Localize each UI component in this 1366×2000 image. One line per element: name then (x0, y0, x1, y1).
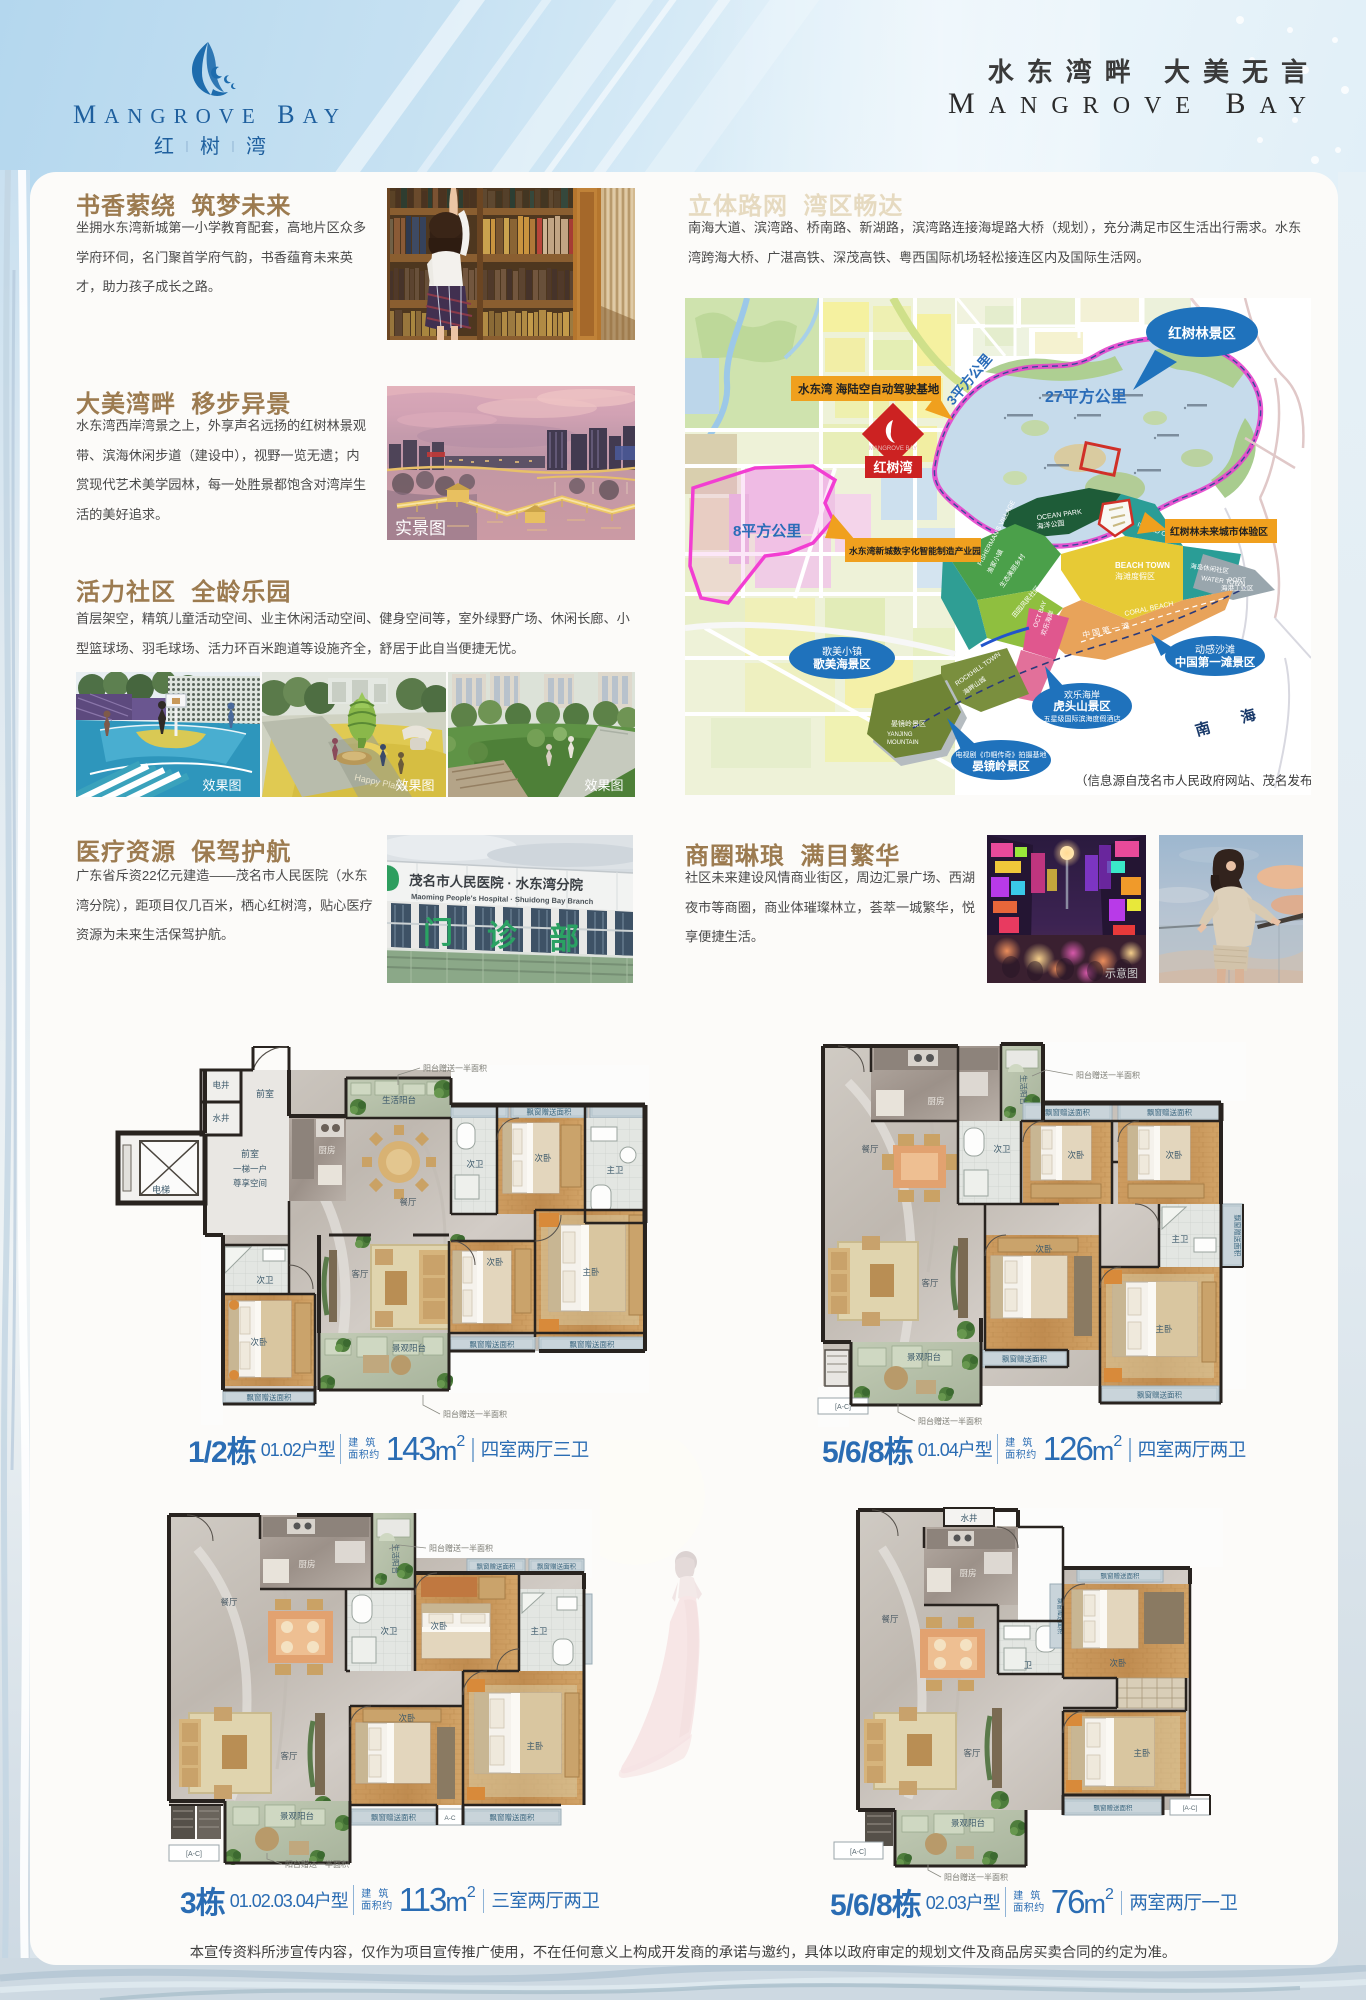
svg-text:电梯: 电梯 (152, 1184, 170, 1195)
svg-text:生活阳台: 生活阳台 (382, 1095, 416, 1105)
svg-text:阳台赠送一半面积: 阳台赠送一半面积 (285, 1859, 349, 1869)
svg-text:诊: 诊 (487, 920, 518, 953)
svg-text:五星级国际滨海度假酒店: 五星级国际滨海度假酒店 (1044, 714, 1121, 723)
svg-text:电视剧《巾帼传奇》拍摄基地: 电视剧《巾帼传奇》拍摄基地 (956, 750, 1047, 759)
svg-text:一梯一户: 一梯一户 (233, 1164, 267, 1174)
svg-text:示意图: 示意图 (1105, 966, 1138, 980)
svg-text:YANJING: YANJING (887, 732, 913, 738)
svg-text:厨房: 厨房 (298, 1559, 315, 1569)
svg-text:红树林景区: 红树林景区 (1168, 325, 1236, 341)
svg-text:次卧: 次卧 (1035, 1244, 1053, 1254)
svg-text:次卧: 次卧 (1165, 1150, 1183, 1160)
svg-text:景观阳台: 景观阳台 (280, 1811, 314, 1821)
svg-text:次卫: 次卫 (993, 1144, 1011, 1154)
svg-text:餐厅: 餐厅 (881, 1614, 899, 1624)
svg-text:主卧: 主卧 (582, 1267, 600, 1277)
svg-text:飘窗赠送面积: 飘窗赠送面积 (477, 1562, 517, 1571)
svg-text:门: 门 (423, 917, 453, 950)
svg-text:[A-C]: [A-C] (186, 1851, 202, 1858)
svg-text:厨房: 厨房 (927, 1096, 944, 1106)
svg-text:红树林未来城市体验区: 红树林未来城市体验区 (1170, 525, 1268, 538)
svg-text:次卧: 次卧 (1067, 1150, 1085, 1160)
svg-text:虎头山景区: 虎头山景区 (1053, 699, 1111, 713)
svg-text:PORT: PORT (1228, 577, 1246, 584)
svg-text:[A-C]: [A-C] (1183, 1805, 1198, 1812)
svg-text:前室: 前室 (256, 1088, 274, 1099)
svg-text:27平方公里: 27平方公里 (1045, 387, 1127, 406)
svg-text:水东湾新城数字化智能制造产业园: 水东湾新城数字化智能制造产业园 (849, 545, 981, 556)
svg-text:餐厅: 餐厅 (861, 1144, 879, 1154)
svg-text:水井: 水井 (212, 1113, 229, 1123)
svg-text:客厅: 客厅 (351, 1269, 369, 1279)
svg-text:阳台赠送一半面积: 阳台赠送一半面积 (1076, 1070, 1140, 1080)
svg-text:飘窗赠送面积: 飘窗赠送面积 (247, 1392, 292, 1402)
svg-text:中国第一滩景区: 中国第一滩景区 (1175, 655, 1256, 669)
svg-text:飘窗赠送面积: 飘窗赠送面积 (490, 1812, 535, 1822)
svg-text:（信息源自茂名市人民政府网站、茂名发布）: （信息源自茂名市人民政府网站、茂名发布） (1075, 773, 1311, 788)
svg-text:BEACH TOWN: BEACH TOWN (1115, 561, 1170, 570)
svg-text:飘窗赠送面积: 飘窗赠送面积 (1233, 1215, 1242, 1257)
svg-text:飘窗赠送面积: 飘窗赠送面积 (570, 1339, 615, 1349)
svg-text:飘窗赠送面积: 飘窗赠送面积 (527, 1107, 572, 1117)
svg-text:次卧: 次卧 (486, 1257, 504, 1267)
svg-text:海滩度假区: 海滩度假区 (1115, 571, 1155, 581)
svg-text:A-C: A-C (444, 1815, 456, 1822)
svg-text:生活阳台: 生活阳台 (391, 1544, 401, 1574)
svg-text:生活阳台: 生活阳台 (1019, 1075, 1029, 1105)
svg-text:次卧: 次卧 (534, 1153, 552, 1163)
svg-text:动感沙滩: 动感沙滩 (1195, 643, 1235, 656)
svg-text:景观阳台: 景观阳台 (951, 1818, 985, 1828)
svg-text:次卧: 次卧 (398, 1713, 416, 1723)
svg-text:主卧: 主卧 (526, 1741, 544, 1751)
svg-text:MANGROVE BAY: MANGROVE BAY (869, 446, 917, 452)
svg-text:阳台赠送一半面积: 阳台赠送一半面积 (918, 1416, 982, 1426)
svg-text:次卫: 次卫 (380, 1626, 398, 1636)
svg-text:效果图: 效果图 (202, 778, 241, 793)
svg-text:海港工业区: 海港工业区 (1221, 583, 1254, 592)
svg-text:飘窗赠送面积: 飘窗赠送面积 (1002, 1354, 1047, 1364)
svg-text:MOUNTAIN: MOUNTAIN (887, 740, 919, 746)
svg-text:飘窗赠送面积: 飘窗赠送面积 (1137, 1390, 1182, 1400)
svg-text:景观阳台: 景观阳台 (907, 1352, 941, 1362)
svg-text:欢乐海岸: 欢乐海岸 (1064, 689, 1100, 700)
svg-text:次卧: 次卧 (250, 1337, 268, 1347)
svg-text:景观阳台: 景观阳台 (392, 1343, 426, 1353)
svg-text:客厅: 客厅 (280, 1751, 298, 1761)
svg-text:红树湾: 红树湾 (873, 460, 912, 475)
svg-text:飘窗赠送面积: 飘窗赠送面积 (1147, 1107, 1192, 1117)
svg-text:卫: 卫 (1024, 1660, 1033, 1670)
svg-text:餐厅: 餐厅 (399, 1197, 417, 1207)
svg-text:电井: 电井 (212, 1080, 229, 1090)
svg-text:主卧: 主卧 (1133, 1748, 1151, 1758)
svg-text:水东湾 海陆空自动驾驶基地: 水东湾 海陆空自动驾驶基地 (798, 382, 940, 396)
svg-text:歌美海景区: 歌美海景区 (813, 657, 871, 671)
svg-text:次卫: 次卫 (256, 1275, 274, 1285)
svg-text:实景图: 实景图 (395, 519, 446, 538)
svg-text:飘窗赠送面积: 飘窗赠送面积 (371, 1812, 416, 1822)
svg-text:飘窗赠送面积: 飘窗赠送面积 (1094, 1803, 1134, 1812)
svg-text:晏镜岭景区: 晏镜岭景区 (891, 719, 926, 728)
svg-text:厨房: 厨房 (959, 1568, 976, 1578)
svg-text:主卫: 主卫 (606, 1165, 624, 1175)
svg-text:晏镜岭景区: 晏镜岭景区 (972, 759, 1030, 773)
svg-text:阳台赠送一半面积: 阳台赠送一半面积 (443, 1409, 507, 1419)
svg-text:歌美小镇: 歌美小镇 (822, 645, 862, 658)
svg-text:主卫: 主卫 (530, 1626, 548, 1636)
svg-text:8平方公里: 8平方公里 (733, 522, 801, 540)
svg-text:前室: 前室 (241, 1148, 259, 1159)
svg-text:次卧: 次卧 (430, 1621, 448, 1631)
svg-text:主卫: 主卫 (1171, 1234, 1189, 1244)
svg-text:飘窗赠送面积: 飘窗赠送面积 (537, 1562, 577, 1571)
svg-text:厨房: 厨房 (318, 1145, 335, 1155)
svg-text:客厅: 客厅 (963, 1748, 981, 1758)
svg-text:部: 部 (549, 922, 579, 956)
svg-text:水井: 水井 (960, 1513, 977, 1523)
svg-text:次卫: 次卫 (466, 1159, 484, 1169)
svg-text:效果图: 效果图 (584, 778, 623, 793)
svg-text:客厅: 客厅 (921, 1278, 939, 1288)
svg-text:次卧: 次卧 (1109, 1658, 1127, 1668)
svg-text:阳台赠送一半面积: 阳台赠送一半面积 (423, 1063, 487, 1073)
svg-text:主卧: 主卧 (1155, 1324, 1173, 1334)
svg-text:[A-C]: [A-C] (835, 1404, 851, 1411)
svg-text:飘窗赠送面积: 飘窗赠送面积 (470, 1339, 515, 1349)
svg-text:餐厅: 餐厅 (220, 1597, 238, 1607)
svg-text:阳台赠送一半面积: 阳台赠送一半面积 (429, 1543, 493, 1553)
svg-text:效果图: 效果图 (395, 778, 434, 793)
svg-text:飘窗赠送面积: 飘窗赠送面积 (1045, 1107, 1090, 1117)
svg-text:飘窗赠送面积: 飘窗赠送面积 (1101, 1571, 1141, 1580)
svg-text:尊享空间: 尊享空间 (233, 1178, 267, 1188)
svg-text:[A-C]: [A-C] (850, 1849, 866, 1856)
